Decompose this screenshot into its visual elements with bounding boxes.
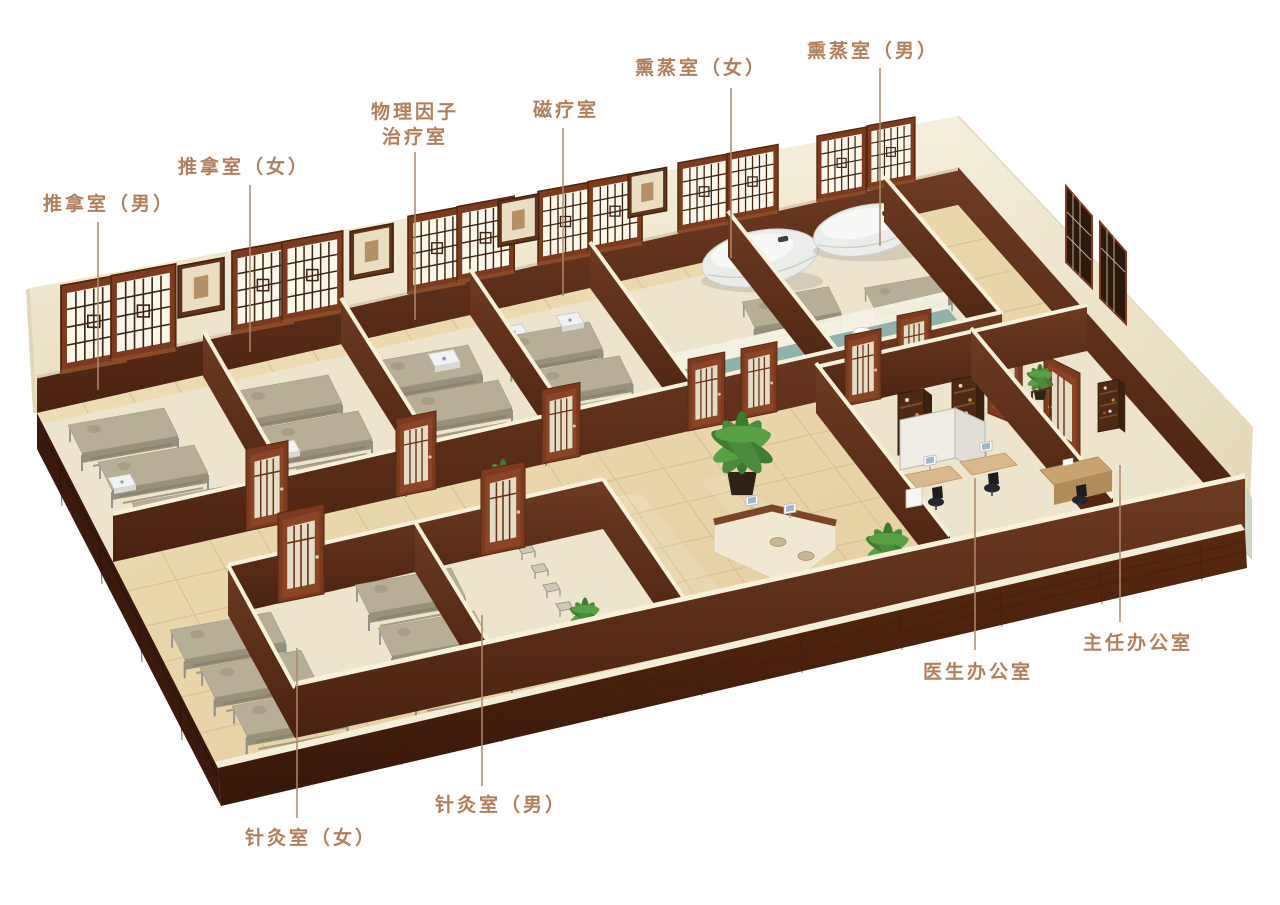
room-label-physical-factor-therapy: 物理因子 治疗室 <box>371 100 459 149</box>
door-fumigation-female <box>741 342 777 419</box>
floorplan-page: 推拿室（男） 推拿室（女） 物理因子 治疗室 磁疗室 熏蒸室（女） 熏蒸室（男）… <box>0 0 1280 905</box>
room-label-acupuncture-female: 针灸室（女） <box>245 826 377 851</box>
room-label-massage-male: 推拿室（男） <box>43 192 175 217</box>
room-label-director-office: 主任办公室 <box>1083 631 1193 656</box>
floorplan-render <box>0 0 1280 905</box>
door-doctor-office <box>845 329 881 406</box>
room-label-magnetic-therapy: 磁疗室 <box>533 98 599 123</box>
room-label-fumigation-male: 熏蒸室（男） <box>807 39 939 64</box>
door-magnetic-therapy <box>688 352 725 431</box>
room-label-doctor-office: 医生办公室 <box>923 660 1033 685</box>
room-label-massage-female: 推拿室（女） <box>178 155 310 180</box>
room-label-fumigation-female: 熏蒸室（女） <box>635 56 767 81</box>
door-massage-female <box>396 411 436 497</box>
room-label-acupuncture-male: 针灸室（男） <box>435 793 567 818</box>
door-acupuncture-male <box>481 461 525 556</box>
door-acupuncture-female <box>278 504 324 603</box>
room-label-line: 治疗室 <box>371 125 459 150</box>
director-bookshelf <box>1098 379 1125 433</box>
room-label-line: 物理因子 <box>371 100 459 125</box>
door-physical-therapy <box>542 382 580 464</box>
